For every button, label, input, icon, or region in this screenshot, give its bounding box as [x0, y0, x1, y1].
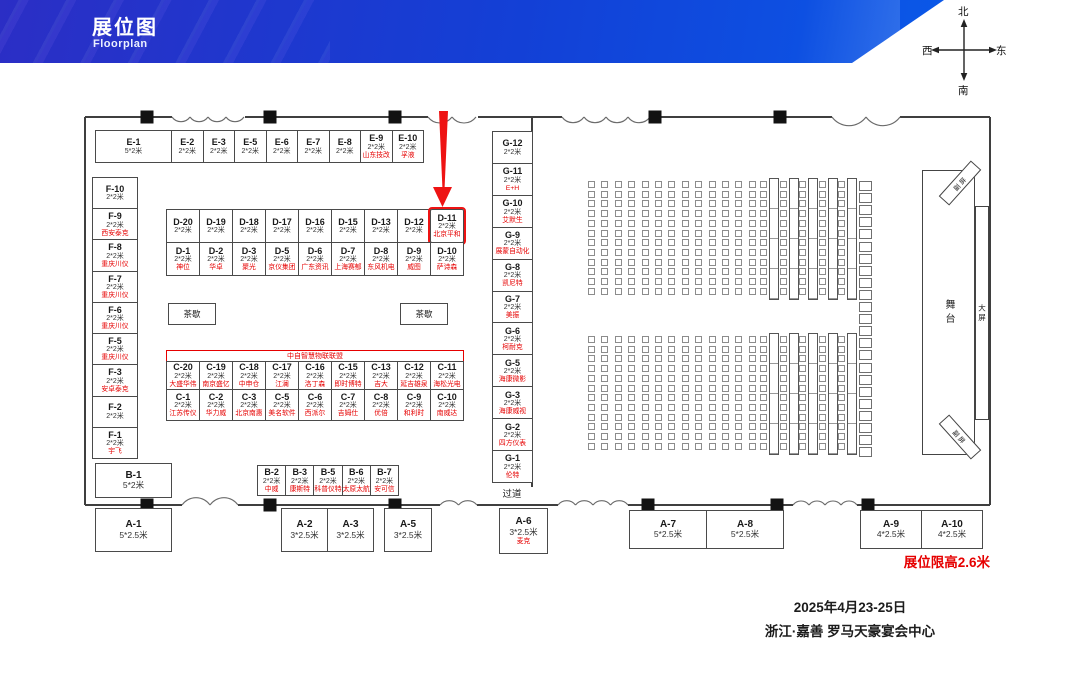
- audience-chair: [655, 220, 662, 227]
- audience-chair: [749, 423, 756, 430]
- audience-chair: [819, 423, 826, 430]
- audience-chair: [695, 230, 702, 237]
- audience-chair: [588, 191, 595, 198]
- audience-chair: [838, 404, 845, 411]
- banquet-chair: [859, 399, 872, 409]
- booth-exhibitor: 京仪集团: [268, 264, 295, 272]
- audience-chair: [682, 181, 689, 188]
- audience-chair: [722, 346, 729, 353]
- audience-chair: [642, 239, 649, 246]
- booth-F-6: F-62*2米重庆川仪: [92, 302, 138, 334]
- audience-chair: [838, 268, 845, 275]
- booth-id: G-10: [502, 198, 522, 208]
- booth-exhibitor: 海松光电: [433, 381, 460, 389]
- audience-chair: [838, 355, 845, 362]
- audience-chair: [628, 249, 635, 256]
- audience-chair: [722, 249, 729, 256]
- booth-id: F-2: [108, 402, 122, 412]
- booth-exhibitor: 南京盛亿: [202, 381, 229, 389]
- audience-chair: [709, 278, 716, 285]
- booth-B-3: B-32*2米康斯特: [285, 465, 314, 496]
- audience-chair: [695, 414, 702, 421]
- booth-exhibitor: 伦特: [506, 472, 520, 480]
- audience-chair: [760, 385, 767, 392]
- audience-chair: [760, 278, 767, 285]
- booth-id: B-5: [321, 467, 336, 477]
- booth-C-8: C-82*2米优倍: [364, 389, 398, 421]
- booth-id: D-6: [308, 246, 323, 256]
- audience-chair: [668, 288, 675, 295]
- audience-chair: [838, 181, 845, 188]
- audience-chair: [601, 433, 608, 440]
- audience-chair: [588, 230, 595, 237]
- audience-chair: [642, 443, 649, 450]
- event-footer: 2025年4月23-25日 浙江·嘉善 罗马天豪宴会中心: [690, 596, 1010, 643]
- booth-id: G-5: [505, 358, 520, 368]
- banquet-chair: [859, 387, 872, 397]
- audience-chair: [668, 355, 675, 362]
- long-table: [847, 178, 857, 300]
- booth-exhibitor: 东风机电: [367, 264, 394, 272]
- audience-chair: [709, 230, 716, 237]
- booth-id: B-3: [293, 467, 308, 477]
- audience-chair: [780, 375, 787, 382]
- audience-chair: [628, 375, 635, 382]
- booth-G-10: G-102*2米艾默生: [492, 195, 533, 228]
- audience-chair: [655, 249, 662, 256]
- audience-chair: [780, 220, 787, 227]
- booth-D-8: D-82*2米东风机电: [364, 242, 398, 276]
- booth-id: C-17: [272, 362, 292, 372]
- audience-chair: [760, 394, 767, 401]
- booth-exhibitor: 安卓泰克: [101, 386, 128, 394]
- booth-id: G-3: [505, 390, 520, 400]
- banquet-chair: [859, 375, 872, 385]
- audience-chair: [642, 365, 649, 372]
- booth-D-2: D-22*2米华卓: [199, 242, 233, 276]
- audience-chair: [819, 268, 826, 275]
- audience-chair: [615, 423, 622, 430]
- audience-chair: [682, 268, 689, 275]
- audience-chair: [695, 249, 702, 256]
- booth-size: 2*2米: [405, 373, 423, 381]
- audience-chair: [749, 394, 756, 401]
- booth-G-12: G-122*2米: [492, 131, 533, 164]
- booth-C-3: C-32*2米北京南惠: [232, 389, 266, 421]
- booth-exhibitor: E+H: [506, 185, 519, 193]
- height-limit-note: 展位限高2.6米: [820, 551, 990, 571]
- audience-chair: [709, 433, 716, 440]
- booth-F-7: F-72*2米重庆川仪: [92, 271, 138, 303]
- booth-E-8: E-82*2米: [329, 130, 362, 163]
- audience-chair: [838, 220, 845, 227]
- booth-id: E-6: [275, 137, 289, 147]
- audience-chair: [838, 288, 845, 295]
- booth-size: 2*2米: [241, 148, 259, 156]
- audience-chair: [722, 414, 729, 421]
- audience-chair: [655, 346, 662, 353]
- audience-chair: [682, 288, 689, 295]
- audience-chair: [655, 259, 662, 266]
- long-table: [847, 333, 857, 455]
- booth-F-3: F-32*2米安卓泰克: [92, 364, 138, 396]
- audience-chair: [749, 433, 756, 440]
- audience-chair: [615, 210, 622, 217]
- audience-chair: [819, 414, 826, 421]
- page-title: 展位图: [92, 11, 158, 40]
- booth-A-5: A-5 3*2.5米: [384, 508, 432, 552]
- audience-chair: [709, 394, 716, 401]
- audience-chair: [799, 191, 806, 198]
- audience-chair: [819, 433, 826, 440]
- audience-chair: [799, 433, 806, 440]
- long-table: [789, 178, 799, 300]
- booth-id: B-2: [264, 467, 279, 477]
- audience-chair: [838, 375, 845, 382]
- audience-chair: [668, 336, 675, 343]
- audience-chair: [760, 191, 767, 198]
- audience-chair: [588, 336, 595, 343]
- banquet-chair: [859, 363, 872, 373]
- booth-id: C-1: [176, 392, 191, 402]
- booth-C-5: C-52*2米美名软件: [265, 389, 299, 421]
- compass-east-label: 东: [996, 43, 1007, 58]
- audience-chair: [588, 394, 595, 401]
- booth-id: G-11: [503, 166, 523, 176]
- booth-E-9: E-92*2米山东技改: [360, 130, 393, 163]
- booth-exhibitor: 凯尼特: [502, 280, 522, 288]
- booth-D-13: D-132*2米: [364, 209, 398, 243]
- audience-chair: [749, 200, 756, 207]
- audience-chair: [749, 268, 756, 275]
- audience-chair: [588, 355, 595, 362]
- audience-chair: [682, 259, 689, 266]
- audience-chair: [682, 365, 689, 372]
- booth-id: F-7: [108, 274, 122, 284]
- booth-row-B: B-22*2米中威B-32*2米康斯特B-52*2米科普仪特B-62*2米太原太…: [257, 465, 399, 496]
- booth-exhibitor: 科普仪特: [314, 486, 341, 494]
- audience-chair: [628, 346, 635, 353]
- audience-chair: [628, 385, 635, 392]
- audience-chair: [588, 385, 595, 392]
- audience-chair: [760, 259, 767, 266]
- booth-exhibitor: 优倍: [374, 410, 388, 418]
- booth-exhibitor: 西派尔: [305, 410, 325, 418]
- booth-size: 2*2米: [106, 284, 124, 292]
- booth-size: 2*2米: [210, 148, 228, 156]
- booth-A-10: A-104*2.5米: [921, 510, 983, 549]
- booth-id: C-7: [341, 392, 356, 402]
- booth-C-11: C-112*2米海松光电: [430, 361, 464, 390]
- booth-id: D-3: [242, 246, 257, 256]
- audience-chair: [682, 220, 689, 227]
- booth-size: 2*2米: [376, 478, 394, 486]
- booth-exhibitor: 江澜: [275, 381, 289, 389]
- booth-id: D-11: [437, 213, 456, 223]
- audience-chair: [682, 443, 689, 450]
- audience-chair: [628, 365, 635, 372]
- audience-chair: [655, 394, 662, 401]
- audience-chair: [760, 346, 767, 353]
- banquet-chair: [859, 290, 872, 300]
- audience-chair: [642, 423, 649, 430]
- audience-chair: [588, 443, 595, 450]
- audience-chair: [668, 239, 675, 246]
- long-table: [808, 333, 818, 455]
- compass: 北 南 西 东: [920, 4, 1008, 96]
- audience-chair: [682, 375, 689, 382]
- booth-size: 2*2米: [263, 478, 281, 486]
- audience-chair: [722, 404, 729, 411]
- audience-chair: [628, 210, 635, 217]
- audience-chair: [780, 433, 787, 440]
- audience-chair: [799, 404, 806, 411]
- audience-chair: [615, 191, 622, 198]
- audience-chair: [695, 288, 702, 295]
- booth-exhibitor: 美名软件: [268, 410, 295, 418]
- audience-chair: [735, 443, 742, 450]
- audience-chair: [760, 423, 767, 430]
- long-table: [808, 178, 818, 300]
- booth-size: 2*2米: [438, 373, 456, 381]
- audience-chair: [780, 249, 787, 256]
- audience-chair: [642, 336, 649, 343]
- booth-exhibitor: 华力威: [206, 410, 226, 418]
- audience-chair: [615, 336, 622, 343]
- audience-chair: [735, 336, 742, 343]
- audience-chair: [819, 404, 826, 411]
- booth-E-3: E-32*2米: [203, 130, 236, 163]
- audience-chair: [695, 346, 702, 353]
- booth-id: D-7: [341, 246, 356, 256]
- audience-chair: [838, 249, 845, 256]
- booth-size: 2*2米: [240, 227, 258, 235]
- audience-chair: [735, 268, 742, 275]
- booth-exhibitor: 南威达: [437, 410, 457, 418]
- audience-chair: [749, 336, 756, 343]
- booth-id: G-8: [505, 262, 520, 272]
- booth-G-2: G-22*2米四方仪表: [492, 418, 533, 451]
- audience-chair: [695, 375, 702, 382]
- booth-id: C-18: [239, 362, 259, 372]
- audience-chair: [668, 404, 675, 411]
- audience-chair: [799, 278, 806, 285]
- audience-chair: [601, 288, 608, 295]
- booth-id: D-13: [371, 217, 391, 227]
- audience-chair: [695, 220, 702, 227]
- booth-exhibitor: 即时博特: [334, 381, 361, 389]
- audience-chair: [682, 336, 689, 343]
- audience-chair: [588, 423, 595, 430]
- audience-chair: [655, 385, 662, 392]
- audience-chair: [668, 423, 675, 430]
- audience-chair: [655, 200, 662, 207]
- audience-chair: [682, 200, 689, 207]
- booth-D-17: D-172*2米: [265, 209, 299, 243]
- booth-C-19: C-192*2米南京盛亿: [199, 361, 233, 390]
- booth-D-5: D-52*2米京仪集团: [265, 242, 299, 276]
- booth-exhibitor: 太原太航: [343, 486, 370, 494]
- audience-chair: [628, 355, 635, 362]
- audience-chair: [819, 239, 826, 246]
- booth-row-A7-A8: A-75*2.5米A-85*2.5米: [629, 510, 784, 549]
- booth-id: C-19: [206, 362, 226, 372]
- audience-chair: [668, 414, 675, 421]
- booth-id: C-8: [374, 392, 389, 402]
- audience-chair: [695, 268, 702, 275]
- audience-chair: [615, 355, 622, 362]
- audience-chair: [819, 336, 826, 343]
- audience-chair: [760, 355, 767, 362]
- audience-chair: [838, 259, 845, 266]
- booth-D-9: D-92*2米威图: [397, 242, 431, 276]
- audience-chair: [588, 278, 595, 285]
- audience-chair: [799, 239, 806, 246]
- booth-size: 2*2米: [273, 148, 291, 156]
- audience-chair: [780, 200, 787, 207]
- booth-exhibitor: 宇飞: [108, 448, 122, 456]
- booth-A-7: A-75*2.5米: [629, 510, 707, 549]
- audience-chair: [695, 239, 702, 246]
- audience-chair: [749, 210, 756, 217]
- booth-row-C-bottom: C-12*2米江苏传仪C-22*2米华力威C-32*2米北京南惠C-52*2米美…: [166, 389, 464, 421]
- booth-C-6: C-62*2米西派尔: [298, 389, 332, 421]
- audience-chair: [668, 346, 675, 353]
- audience-chair: [722, 336, 729, 343]
- audience-chair: [799, 443, 806, 450]
- booth-D-3: D-32*2米聚光: [232, 242, 266, 276]
- booth-exhibitor: 海康微影: [499, 376, 526, 384]
- booth-id: G-9: [505, 230, 520, 240]
- booth-size: 2*2米: [336, 148, 354, 156]
- audience-chair: [655, 404, 662, 411]
- audience-chair: [780, 239, 787, 246]
- audience-chair: [682, 414, 689, 421]
- booth-id: D-20: [173, 217, 193, 227]
- audience-chair: [682, 404, 689, 411]
- audience-chair: [709, 268, 716, 275]
- audience-chair: [722, 230, 729, 237]
- booth-G-9: G-92*2米展蒙自动化: [492, 227, 533, 260]
- audience-chair: [642, 375, 649, 382]
- audience-chair: [799, 249, 806, 256]
- booth-size: 5*2.5米: [731, 530, 759, 540]
- booth-size: 2*2米: [504, 464, 522, 472]
- audience-chair: [838, 336, 845, 343]
- booth-exhibitor: 安可信: [374, 486, 394, 494]
- booth-B-6: B-62*2米太原太航: [342, 465, 371, 496]
- audience-chair: [749, 239, 756, 246]
- booth-size: 2*2米: [240, 373, 258, 381]
- audience-chair: [735, 404, 742, 411]
- booth-size: 4*2.5米: [938, 530, 966, 540]
- compass-south-label: 南: [958, 83, 969, 98]
- audience-chair: [709, 365, 716, 372]
- audience-chair: [799, 210, 806, 217]
- booth-B-7: B-72*2米安可信: [370, 465, 399, 496]
- booth-id: F-1: [108, 430, 122, 440]
- audience-chair: [780, 414, 787, 421]
- audience-chair: [735, 181, 742, 188]
- banquet-chair: [859, 326, 872, 336]
- booth-size: 2*2米: [504, 209, 522, 217]
- audience-chair: [628, 239, 635, 246]
- booth-G-3: G-32*2米海康威视: [492, 386, 533, 419]
- booth-size: 2*2米: [504, 368, 522, 376]
- audience-chair: [682, 394, 689, 401]
- audience-chair: [601, 394, 608, 401]
- seating-area: [0, 0, 1080, 695]
- booth-id: D-5: [275, 246, 290, 256]
- audience-chair: [838, 443, 845, 450]
- booth-exhibitor: 萨诗森: [437, 264, 457, 272]
- audience-chair: [838, 346, 845, 353]
- booth-B-5: B-52*2米科普仪特: [313, 465, 342, 496]
- audience-chair: [601, 346, 608, 353]
- audience-chair: [735, 288, 742, 295]
- audience-chair: [642, 355, 649, 362]
- booth-exhibitor: 四方仪表: [499, 440, 526, 448]
- booth-exhibitor: 山东技改: [363, 152, 390, 160]
- audience-chair: [709, 210, 716, 217]
- audience-chair: [780, 394, 787, 401]
- audience-chair: [615, 268, 622, 275]
- audience-chair: [588, 346, 595, 353]
- booth-size: 2*2米: [339, 227, 357, 235]
- banquet-chair: [859, 229, 872, 239]
- booth-exhibitor: 广东资讯: [301, 264, 328, 272]
- audience-chair: [655, 443, 662, 450]
- audience-chair: [749, 355, 756, 362]
- floorplan-page: 展位图 Floorplan 北 南 西 东: [0, 0, 1080, 695]
- audience-chair: [628, 200, 635, 207]
- audience-chair: [655, 355, 662, 362]
- audience-chair: [642, 404, 649, 411]
- banquet-chair: [859, 338, 872, 348]
- audience-chair: [749, 346, 756, 353]
- audience-chair: [709, 181, 716, 188]
- audience-chair: [615, 259, 622, 266]
- booth-C-1: C-12*2米江苏传仪: [166, 389, 200, 421]
- banquet-chair: [859, 278, 872, 288]
- booth-D-1: D-12*2米神位: [166, 242, 200, 276]
- audience-chair: [749, 278, 756, 285]
- audience-chair: [760, 181, 767, 188]
- audience-chair: [799, 268, 806, 275]
- booth-D-6: D-62*2米广东资讯: [298, 242, 332, 276]
- audience-chair: [615, 200, 622, 207]
- booth-row-A2-A3: A-23*2.5米A-33*2.5米: [281, 508, 374, 552]
- stage: 舞台: [922, 170, 975, 455]
- booth-row-A9-A10: A-94*2.5米A-104*2.5米: [860, 510, 983, 549]
- audience-chair: [799, 423, 806, 430]
- audience-chair: [682, 355, 689, 362]
- audience-chair: [695, 433, 702, 440]
- audience-chair: [838, 191, 845, 198]
- audience-chair: [682, 191, 689, 198]
- audience-chair: [819, 394, 826, 401]
- audience-chair: [722, 355, 729, 362]
- audience-chair: [601, 443, 608, 450]
- booth-size: 2*2米: [504, 177, 522, 185]
- audience-chair: [695, 210, 702, 217]
- booth-size: 2*2米: [372, 373, 390, 381]
- booth-id: D-15: [338, 217, 358, 227]
- audience-chair: [780, 423, 787, 430]
- booth-size: 2*2米: [174, 373, 192, 381]
- audience-chair: [601, 278, 608, 285]
- audience-chair: [642, 249, 649, 256]
